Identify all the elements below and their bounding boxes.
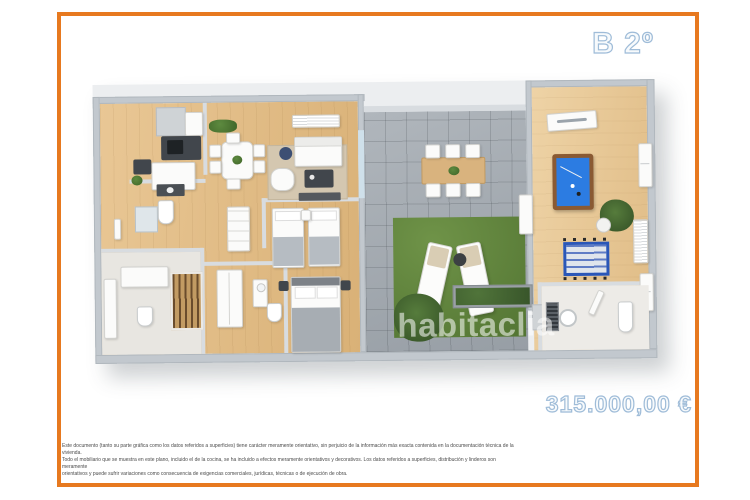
double-bed <box>291 276 342 353</box>
billiard-felt <box>556 158 590 206</box>
wall-bedroom1-left <box>262 198 267 248</box>
outdoor-chair <box>425 144 440 158</box>
bath3-toilet <box>267 303 282 322</box>
entry-door <box>114 219 121 240</box>
outdoor-chair <box>426 183 441 197</box>
nightstand <box>301 210 311 221</box>
outdoor-chair <box>466 183 481 197</box>
window-mullion <box>640 163 649 164</box>
dining-chair <box>226 178 240 189</box>
bed-blanket <box>273 237 303 266</box>
bath3-sink <box>253 279 268 307</box>
mirror <box>257 283 266 292</box>
pillow <box>317 286 338 298</box>
sink <box>167 187 174 193</box>
table-plant <box>232 155 242 164</box>
potted-plant <box>600 199 634 231</box>
billiard-ball <box>577 192 581 196</box>
dining-chair <box>253 160 265 173</box>
outdoor-chair <box>445 144 460 158</box>
duvet <box>292 307 340 352</box>
kitchen-counter <box>161 136 201 160</box>
bath2-vanity <box>104 279 118 339</box>
disclaimer-line: Todo el mobiliario que se muestra en est… <box>62 457 518 471</box>
bath1-vanity <box>157 184 185 196</box>
dining-wall-plant <box>209 119 237 132</box>
unit-label: B 2º <box>578 27 668 61</box>
lounger-side-table <box>453 253 466 266</box>
nightstand <box>279 281 289 291</box>
kitchen-plant <box>131 175 142 185</box>
terrace-counter <box>519 194 533 234</box>
outdoor-dining-table <box>421 157 485 185</box>
dining-chair <box>253 144 265 157</box>
foosball-handles <box>563 238 609 241</box>
wardrobe-door-split <box>228 273 230 325</box>
hallway-cabinet <box>227 206 250 251</box>
terrace-glass-door <box>358 130 365 198</box>
disclaimer: Este documento (tanto su parte gráfica c… <box>62 443 518 478</box>
bed-blanket <box>309 236 339 264</box>
outdoor-chair <box>446 183 461 197</box>
pillow <box>311 210 337 220</box>
wall-games-top <box>525 79 651 87</box>
kitchen-sink-counter <box>133 159 151 174</box>
cue-stick <box>560 166 582 178</box>
games-bath-toilet <box>618 301 633 332</box>
pillow <box>295 287 316 299</box>
table-centerpiece-plant <box>448 166 459 175</box>
foosball-table <box>563 242 609 276</box>
disclaimer-line: orientativos y puede sufrir variaciones … <box>62 471 518 478</box>
nightstand <box>341 280 351 290</box>
pouf <box>279 147 292 160</box>
bath1-shower <box>135 206 158 232</box>
kitchen-cabinet <box>185 112 203 136</box>
dining-chair <box>209 161 221 174</box>
window <box>638 143 652 187</box>
bath2-toilet <box>137 306 153 326</box>
price-label: 315.000,00 € <box>540 391 692 418</box>
tv-sideboard <box>299 192 341 200</box>
sofa-back <box>295 137 341 146</box>
bath1-toilet <box>158 200 174 224</box>
wardrobe <box>216 269 243 327</box>
dining-chair <box>226 132 240 143</box>
open-wardrobe <box>170 272 203 330</box>
watermark: habitaclia <box>381 305 571 345</box>
plant-pot <box>596 218 611 233</box>
single-bed <box>308 207 341 266</box>
sofa <box>294 136 342 167</box>
coffee-table <box>304 169 333 187</box>
foosball-handles <box>564 277 610 280</box>
floor-plan: habitaclia <box>88 77 669 375</box>
billiard-ball <box>571 184 575 188</box>
outdoor-chair <box>465 144 480 158</box>
dining-chair <box>209 145 221 158</box>
pillow <box>275 211 301 221</box>
armchair <box>270 168 294 191</box>
wall-panel <box>633 219 648 263</box>
ac-vent <box>292 114 340 128</box>
dining-table <box>221 141 253 179</box>
bath2-shower-tray <box>120 266 168 288</box>
billiard-table <box>552 154 594 210</box>
disclaimer-line: Este documento (tanto su parte gráfica c… <box>62 443 518 457</box>
headboard <box>292 277 340 286</box>
kitchen-tall-unit <box>156 107 186 136</box>
single-bed <box>272 208 305 268</box>
cooktop <box>167 140 183 154</box>
sign-text-mark <box>557 118 587 123</box>
wall-kitchen-right <box>203 103 208 175</box>
table-decor <box>309 175 314 180</box>
